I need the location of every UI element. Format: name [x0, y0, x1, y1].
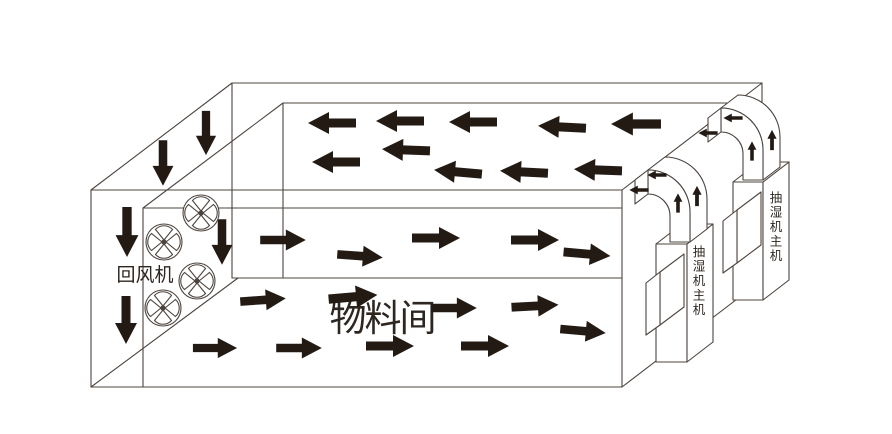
floor_supply-arrow-icon	[559, 319, 606, 344]
ceiling_return-arrow-icon	[449, 111, 497, 133]
ceiling_return-arrow-icon	[499, 160, 548, 184]
fan-icon	[145, 290, 181, 326]
ceiling_return-arrow-icon	[611, 113, 661, 136]
down_intake-arrow-icon	[153, 140, 174, 186]
material-room-label: 物料间	[330, 297, 435, 340]
mid_supply-arrow-icon	[337, 244, 384, 268]
floor_supply-arrow-icon	[193, 338, 237, 358]
fan-icon	[146, 224, 182, 260]
floor_supply-arrow-icon	[240, 288, 287, 312]
ceiling_return-arrow-icon	[382, 138, 431, 162]
duct-mouth	[708, 108, 721, 142]
floor_supply-arrow-icon	[431, 298, 477, 319]
floor_supply-arrow-icon	[276, 338, 322, 359]
mid_supply-arrow-icon	[511, 229, 559, 251]
unit-inlet-side	[646, 272, 660, 335]
diagram-canvas: 物料间 回风机	[0, 0, 892, 434]
return-fan-group	[145, 195, 219, 326]
dehumidifier-label-near: 抽湿机主机	[693, 244, 706, 317]
ceiling_return-arrow-icon	[308, 112, 356, 134]
ceiling_return-arrow-icon	[312, 151, 360, 173]
floor_supply-arrow-icon	[511, 294, 559, 318]
fan-icon	[183, 195, 219, 231]
fan-icon	[179, 263, 215, 299]
return-fan-label: 回风机	[116, 264, 173, 286]
down_intake-arrow-icon	[116, 207, 139, 257]
ceiling_return-arrow-icon	[537, 115, 586, 139]
ceiling_return-arrow-icon	[376, 110, 424, 132]
down_intake-arrow-icon	[115, 296, 137, 344]
mid_supply-arrow-icon	[563, 241, 612, 267]
ceiling_return-arrow-icon	[433, 159, 483, 185]
dehumidifier-label-far: 抽湿机主机	[770, 190, 783, 263]
mid_supply-arrow-icon	[412, 227, 460, 249]
down_intake-arrow-icon	[196, 111, 216, 155]
down_intake-arrow-icon	[212, 219, 233, 265]
floor_supply-arrow-icon	[461, 335, 509, 357]
unit-inlet-side	[723, 210, 737, 273]
drying-room-diagram: 物料间 回风机	[0, 0, 892, 434]
ceiling_return-arrow-icon	[574, 158, 623, 182]
